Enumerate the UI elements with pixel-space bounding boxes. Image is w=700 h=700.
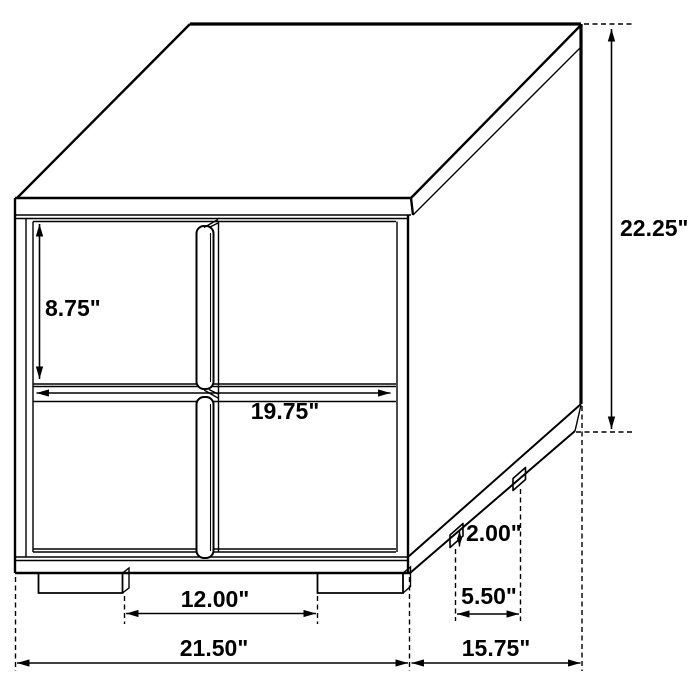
diagram-canvas: 22.25" 8.75" 19.75" 12.00" 21.50" 15.75"… [0,0,700,700]
overall-depth-label: 15.75" [462,635,530,661]
overall-width-label: 21.50" [180,635,248,661]
drawer-handle-lower [197,390,219,559]
upper-handle-top-notch [204,220,218,228]
dimension-front-foot-spacing: 12.00" [126,586,316,614]
drawer-handle-upper [197,220,219,390]
foot-height-label: 2.00" [466,520,522,546]
dimension-side-foot-spacing: 5.50" [457,583,519,614]
dimension-diagram: 22.25" 8.75" 19.75" 12.00" 21.50" 15.75"… [0,0,700,700]
side-foot-spacing-label: 5.50" [461,583,517,609]
front-left-foot-side [123,568,130,593]
front-left-foot [39,573,123,593]
overall-height-label: 22.25" [620,215,688,241]
side-front-foot [450,524,463,548]
front-foot-spacing-label: 12.00" [181,586,249,612]
drawer-width-label: 19.75" [251,398,319,424]
cabinet-back-edges [190,24,581,404]
dimension-overall-width: 21.50" [17,635,408,663]
dimension-foot-height: 2.00" [460,520,522,547]
front-right-foot [318,573,404,593]
side-bottom-edges [408,404,581,573]
dimension-overall-height: 22.25" [612,29,689,429]
dimension-drawer-height: 8.75" [40,224,101,379]
dimension-overall-depth: 15.75" [412,635,581,663]
drawer-height-label: 8.75" [45,295,101,321]
